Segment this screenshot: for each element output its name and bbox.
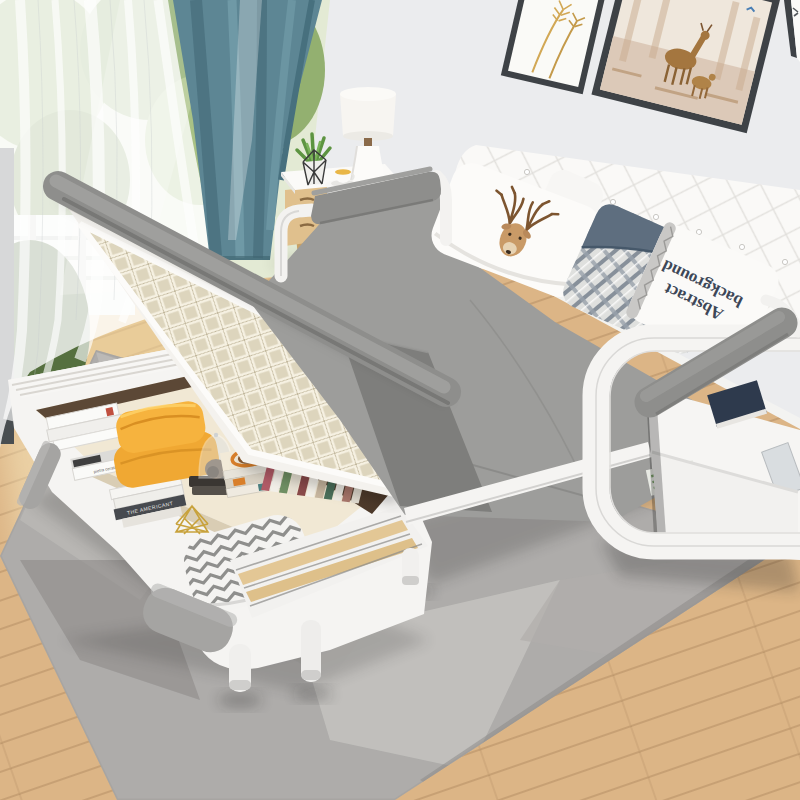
room-photo: pietra cerata THE AMERICANT	[0, 0, 800, 800]
